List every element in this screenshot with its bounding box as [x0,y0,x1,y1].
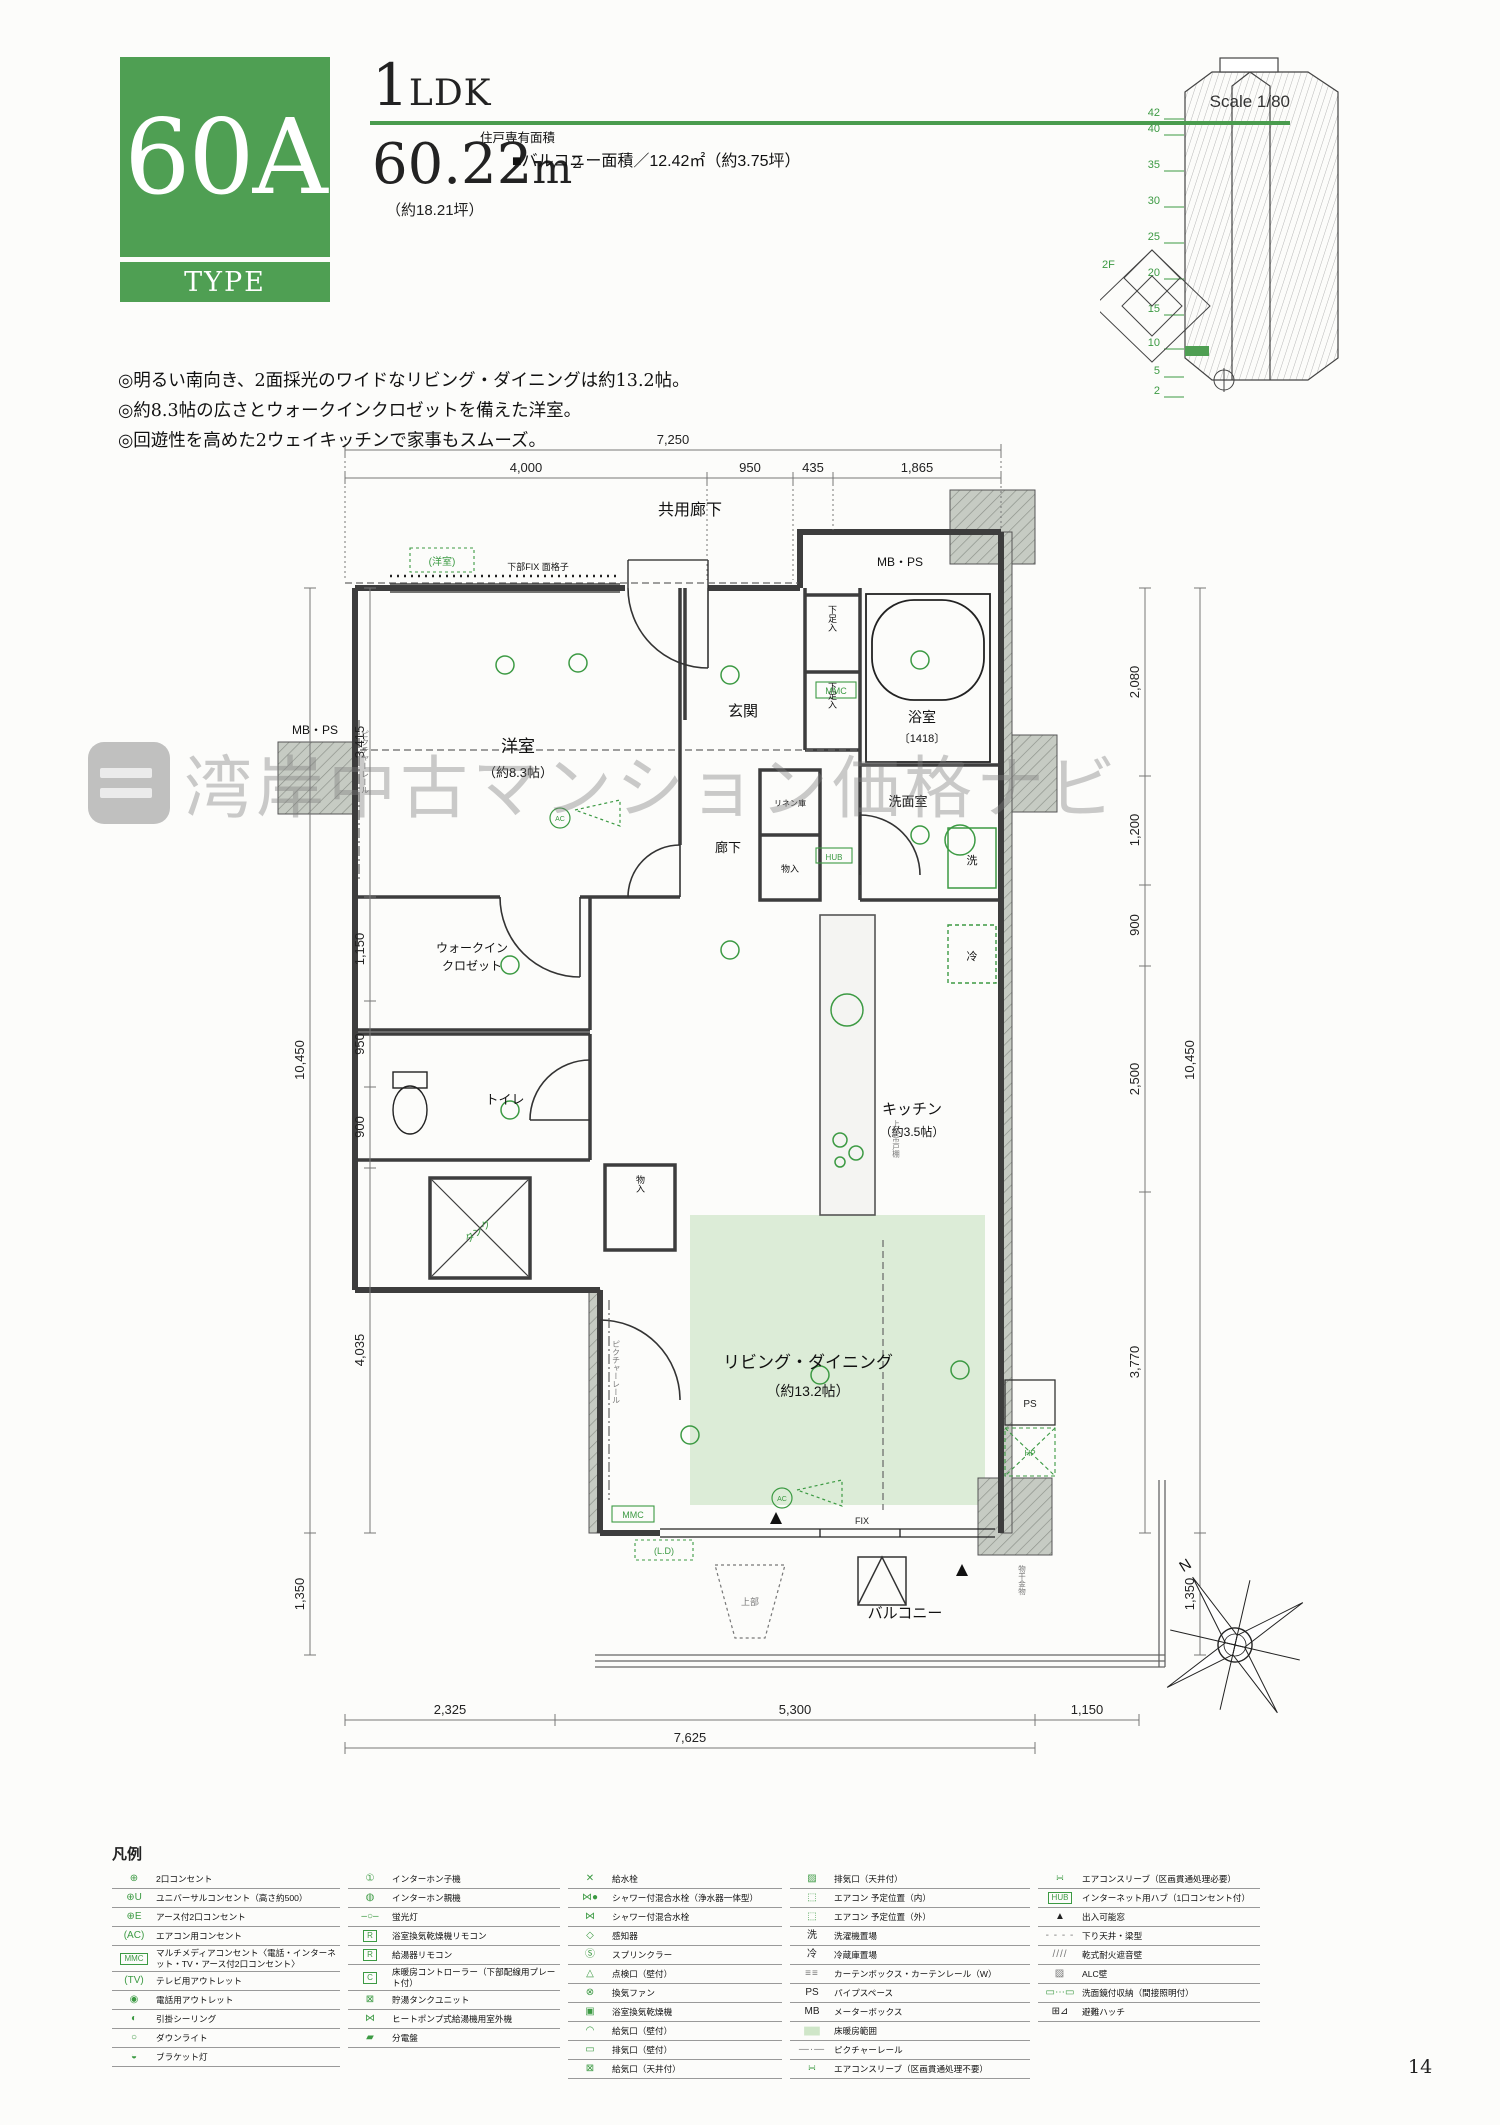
toilet-label: トイレ [485,1092,524,1107]
svg-text:HP: HP [1024,1449,1035,1458]
legend-item: PSパイプスペース [790,1984,1030,2003]
svg-text:ピクチャーレール: ピクチャーレール [612,1340,621,1404]
downlight-icon: ○ [112,2033,156,2043]
intercom-main-icon: ◍ [348,1893,392,1903]
legend-item: ▭⋯▭洗面鏡付収納（間接照明付） [1038,1984,1260,2003]
balcony-label: バルコニー [868,1605,943,1622]
double-outlet-icon: ⊕ [112,1874,156,1884]
legend-item: R浴室換気乾燥機リモコン [348,1927,560,1946]
svg-text:下足入: 下足入 [827,605,837,632]
svg-text:2,080: 2,080 [1127,666,1142,699]
legend-item: ⊠貯湯タンクユニット [348,1991,560,2010]
exhaust-ceiling-icon: ▨ [790,1874,834,1884]
legend-item: HUBインターネット用ハブ（1口コンセント付） [1038,1889,1260,1908]
legend-item: ⊗換気ファン [568,1984,782,2003]
legend-label: 2口コンセント [156,1874,340,1885]
layout-title: 1LDK [372,56,492,114]
legend-item: ⋈ヒートポンプ式給湯機用室外機 [348,2010,560,2029]
bracket-light-icon: ◒ [112,2052,156,2062]
mbps-right-label: MB・PS [877,555,923,569]
legend-item: ⬚エアコン 予定位置（内） [790,1889,1030,1908]
corridor-label: 共用廊下 [658,501,722,519]
picture-rail-icon: —·— [790,2045,834,2055]
legend-item: ◠給気口（壁付） [568,2022,782,2041]
legend-item: ◐引掛シーリング [112,2010,340,2029]
wic-label: ウォークイン [436,941,508,955]
svg-text:1,865: 1,865 [901,460,934,475]
legend-item: MMCマルチメディアコンセント〈電話・インターネット・TV・アース付2口コンセン… [112,1946,340,1972]
legend-item: ①インターホン子機 [348,1870,560,1889]
legend-item: R給湯器リモコン [348,1946,560,1965]
washer-space-icon: 洗 [790,1931,834,1941]
sprinkler-icon: Ⓢ [568,1950,612,1960]
interior-walls [355,588,1001,1278]
svg-text:10,450: 10,450 [1182,1040,1197,1080]
legend-item: ✕給水栓 [568,1870,782,1889]
svg-text:7,625: 7,625 [674,1730,707,1745]
svg-text:物入: 物入 [635,1174,645,1193]
exhaust-wall-icon: ▭ [568,2045,612,2055]
legend-item: ⊕Eアース付2口コンセント [112,1908,340,1927]
svg-text:タンク: タンク [463,1218,494,1246]
ac-outlet-icon: (AC) [112,1931,156,1941]
svg-text:900: 900 [352,1116,367,1138]
floor-scale: 42 40 35 30 25 20 15 10 5 2 [1148,107,1184,397]
ventilation-fan-icon: ⊗ [568,1988,612,1998]
legend-item: ▆▆床暖房範囲 [790,2022,1030,2041]
detector-icon: ◇ [568,1931,612,1941]
balcony-area: ■バルコニー面積／12.42㎡（約3.75坪） [512,147,801,171]
shower-mixer-purifier-icon: ⋈● [568,1893,612,1903]
fireproof-wall-icon: //// [1038,1950,1082,1960]
grounded-outlet-icon: ⊕E [112,1912,156,1922]
faucet-icon: ✕ [568,1874,612,1884]
water-heater-remote-icon: R [363,1949,377,1961]
legend-item: ▰分電盤 [348,2029,560,2048]
legend-item: - - - -下り天井・梁型 [1038,1927,1260,1946]
legend-item: Ⓢスプリンクラー [568,1946,782,1965]
escape-hatch [858,1557,906,1605]
svg-text:MMC: MMC [825,686,847,696]
svg-text:1,350: 1,350 [292,1578,307,1611]
legend-item: ○ダウンライト [112,2029,340,2048]
svg-text:洗: 洗 [967,854,978,867]
legend-column-1: ⊕2口コンセント ⊕Uユニバーサルコンセント（高さ約500） ⊕Eアース付2口コ… [112,1870,340,2079]
phone-outlet-icon: ◉ [112,1995,156,2005]
svg-text:リネン庫: リネン庫 [774,798,806,808]
green-rule [370,121,1290,125]
washbasin [945,825,975,855]
legend-item: ⋈シャワー付混合水栓 [568,1908,782,1927]
feature-item: ◎回遊性を高めた2ウェイキッチンで家事もスムーズ。 [118,426,690,456]
svg-text:2,500: 2,500 [1127,1063,1142,1096]
hall-label: 廊下 [715,840,741,855]
pipe-space-icon: PS [790,1988,834,1998]
hot-water-tank-icon: ⊠ [348,1995,392,2005]
kitchen-label: キッチン [882,1101,942,1118]
svg-text:2,325: 2,325 [434,1702,467,1717]
svg-text:1,150: 1,150 [352,933,367,966]
hub-icon: HUB [1048,1892,1073,1904]
north-label: N [1176,1556,1194,1576]
bath-dryer-remote-icon: R [363,1930,377,1942]
svg-text:(洋室): (洋室) [429,555,456,568]
legend-item: ⊕Uユニバーサルコンセント（高さ約500） [112,1889,340,1908]
legend-item: ◍インターホン親機 [348,1889,560,1908]
legend-item: ▣浴室換気乾燥機 [568,2003,782,2022]
highlight-floor [1185,346,1209,356]
legend-item: –○–蛍光灯 [348,1908,560,1927]
legend-item: ∺エアコンスリーブ（区画貫通処理不要） [790,2060,1030,2079]
svg-text:(L.D): (L.D) [654,1546,674,1556]
bath-dryer-icon: ▣ [568,2007,612,2017]
legend-item: ≡≡カーテンボックス・カーテンレール（W） [790,1965,1030,1984]
balcony-rail [595,1480,1165,1667]
legend-item: ▲出入可能窓 [1038,1908,1260,1927]
svg-text:3,770: 3,770 [1127,1346,1142,1379]
legend-item: ⊕2口コンセント [112,1870,340,1889]
fridge-space-icon: 冷 [790,1950,834,1960]
ceiling-hook-icon: ◐ [112,2014,156,2024]
svg-text:物入: 物入 [781,863,799,874]
floor-heating-area-icon: ▆▆ [790,2026,834,2036]
legend-item: ◉電話用アウトレット [112,1991,340,2010]
svg-text:900: 900 [1127,914,1142,936]
type-badge-bar: TYPE [120,262,330,302]
svg-text:10,450: 10,450 [292,1040,307,1080]
universal-outlet-icon: ⊕U [112,1893,156,1903]
svg-text:10: 10 [1148,337,1160,349]
svg-text:4,000: 4,000 [510,460,543,475]
type-badge: 60A TYPE [120,57,330,303]
tv-outlet-icon: (TV) [112,1976,156,1986]
feature-item: ◎約8.3帖の広さとウォークインクロゼットを備えた洋室。 [118,396,690,426]
svg-text:30: 30 [1148,195,1160,207]
legend-item: ⬚エアコン 予定位置（外） [790,1908,1030,1927]
svg-text:MMC: MMC [622,1510,644,1520]
legend-item: ⋈●シャワー付混合水栓（浄水器一体型） [568,1889,782,1908]
ac-sleeve-req-icon: ∺ [1038,1874,1082,1884]
access-panel-wall-icon: △ [568,1969,612,1979]
svg-text:（約8.3帖）: （約8.3帖） [483,765,553,780]
svg-text:1,200: 1,200 [1127,814,1142,847]
accessible-window-icon: ▲ [1038,1912,1082,1922]
svg-text:FIX: FIX [855,1516,869,1526]
legend-item: (AC)エアコン用コンセント [112,1927,340,1946]
picture-rail-lines [359,720,609,1500]
multimedia-outlet-icon: MMC [120,1953,147,1965]
svg-text:下部FIX 面格子: 下部FIX 面格子 [507,561,569,572]
legend-item: ◇感知器 [568,1927,782,1946]
svg-text:1,150: 1,150 [1071,1702,1104,1717]
svg-text:PS: PS [1023,1399,1037,1410]
bath-label: 浴室 [908,709,936,725]
watermark-logo-icon [88,742,170,824]
legend-column-4: ▨排気口（天井付） ⬚エアコン 予定位置（内） ⬚エアコン 予定位置（外） 洗洗… [790,1870,1030,2079]
feature-item: ◎明るい南向き、2面採光のワイドなリビング・ダイニングは約13.2帖。 [118,366,690,396]
alc-wall-icon: ▨ [1038,1969,1082,1979]
dimension-lines [304,444,1206,1754]
legend-item: 洗洗濯機置場 [790,1927,1030,1946]
type-badge-main: 60A [120,57,330,257]
svg-text:950: 950 [352,1033,367,1055]
legend-title: 凡例 [112,1843,1242,1864]
mirror-cabinet-icon: ▭⋯▭ [1038,1988,1082,1998]
type-code: 60A [124,105,325,209]
meter-box-icon: MB [790,2007,834,2017]
legend-item: ⊞⊿避難ハッチ [1038,2003,1260,2022]
entrance-label: 玄関 [728,703,758,720]
toilet [393,1072,427,1134]
legend-item: C床暖房コントローラー（下部配線用プレート付） [348,1965,560,1991]
escape-hatch-icon: ⊞⊿ [1038,2007,1082,2017]
mbps-left-label: MB・PS [292,723,338,737]
fluorescent-light-icon: –○– [348,1912,392,1922]
legend-item: MBメーターボックス [790,2003,1030,2022]
curtain-box-icon: ≡≡ [790,1969,834,1979]
legend-item: —·—ピクチャーレール [790,2041,1030,2060]
legend-item: △点検口（壁付） [568,1965,782,1984]
svg-text:2: 2 [1154,385,1160,397]
svg-text:上部吊戸棚: 上部吊戸棚 [891,1120,900,1159]
svg-text:435: 435 [802,460,824,475]
legend-column-5: ∺エアコンスリーブ（区画貫通処理必要） HUBインターネット用ハブ（1口コンセン… [1038,1870,1260,2079]
legend-item: ∺エアコンスリーブ（区画貫通処理必要） [1038,1870,1260,1889]
svg-text:AC: AC [777,1496,787,1503]
washroom-label: 洗面室 [888,794,927,809]
legend-item: ▭排気口（壁付） [568,2041,782,2060]
legend-column-2: ①インターホン子機 ◍インターホン親機 –○–蛍光灯 R浴室換気乾燥機リモコン … [348,1870,560,2079]
layout-rest: LDK [409,73,492,114]
svg-text:HUB: HUB [826,853,843,862]
svg-text:冷: 冷 [967,950,978,963]
legend-item: ////乾式耐火遮音壁 [1038,1946,1260,1965]
floor-plan: 7,250 4,000 950 435 1,865 10,450 3,415 1… [260,420,1240,1820]
scale-note: Scale 1/80 [1060,92,1290,112]
svg-text:ピクチャーレール: ピクチャーレール [361,730,370,794]
legend-item: ⊠給気口（天井付） [568,2060,782,2079]
western-room-label: 洋室 [501,737,535,756]
dropped-ceiling-icon: - - - - [1038,1931,1082,1941]
svg-text:AC: AC [555,816,565,823]
legend: 凡例 ⊕2口コンセント ⊕Uユニバーサルコンセント（高さ約500） ⊕Eアース付… [112,1843,1242,2079]
dimension-labels: 7,250 4,000 950 435 1,865 10,450 3,415 1… [292,432,1197,1745]
svg-text:5: 5 [1154,365,1160,377]
legend-item: ▨ALC壁 [1038,1965,1260,1984]
heat-pump-unit-icon: ⋈ [348,2014,392,2024]
page-number: 14 [1408,2056,1432,2078]
compass-rose: N [1150,1540,1320,1725]
type-label: TYPE [184,267,266,298]
svg-text:〔1418〕: 〔1418〕 [899,732,945,745]
living-label: リビング・ダイニング [723,1353,893,1372]
svg-text:950: 950 [739,460,761,475]
svg-text:25: 25 [1148,231,1160,243]
air-supply-wall-icon: ◠ [568,2026,612,2036]
distribution-board-icon: ▰ [348,2033,392,2043]
intercom-handset-icon: ① [348,1874,392,1884]
kitchen-counter [820,915,875,1215]
shower-mixer-icon: ⋈ [568,1912,612,1922]
svg-text:上部: 上部 [741,1596,759,1607]
legend-item: ▨排気口（天井付） [790,1870,1030,1889]
feature-list: ◎明るい南向き、2面採光のワイドなリビング・ダイニングは約13.2帖。 ◎約8.… [118,366,690,456]
layout-first: 1 [372,51,409,119]
floor-heating-controller-icon: C [363,1972,377,1984]
svg-text:4,035: 4,035 [352,1334,367,1367]
ac-sleeve-no-icon: ∺ [790,2064,834,2074]
svg-text:（約3.5帖）: （約3.5帖） [880,1124,945,1139]
legend-column-3: ✕給水栓 ⋈●シャワー付混合水栓（浄水器一体型） ⋈シャワー付混合水栓 ◇感知器… [568,1870,782,2079]
air-supply-ceiling-icon: ⊠ [568,2064,612,2074]
site-floor-label: 2F [1102,259,1115,271]
legend-item: (TV)テレビ用アウトレット [112,1972,340,1991]
svg-text:5,300: 5,300 [779,1702,812,1717]
svg-text:物干金物: 物干金物 [1017,1564,1026,1597]
legend-item: 冷冷蔵庫置場 [790,1946,1030,1965]
svg-text:35: 35 [1148,159,1160,171]
ac-position-in-icon: ⬚ [790,1893,834,1903]
legend-item: ◒ブラケット灯 [112,2048,340,2067]
area-tsubo: （約18.21坪） [386,199,484,220]
ac-position-out-icon: ⬚ [790,1912,834,1922]
svg-text:クロゼット: クロゼット [442,959,502,973]
svg-text:（約13.2帖）: （約13.2帖） [766,1383,849,1399]
